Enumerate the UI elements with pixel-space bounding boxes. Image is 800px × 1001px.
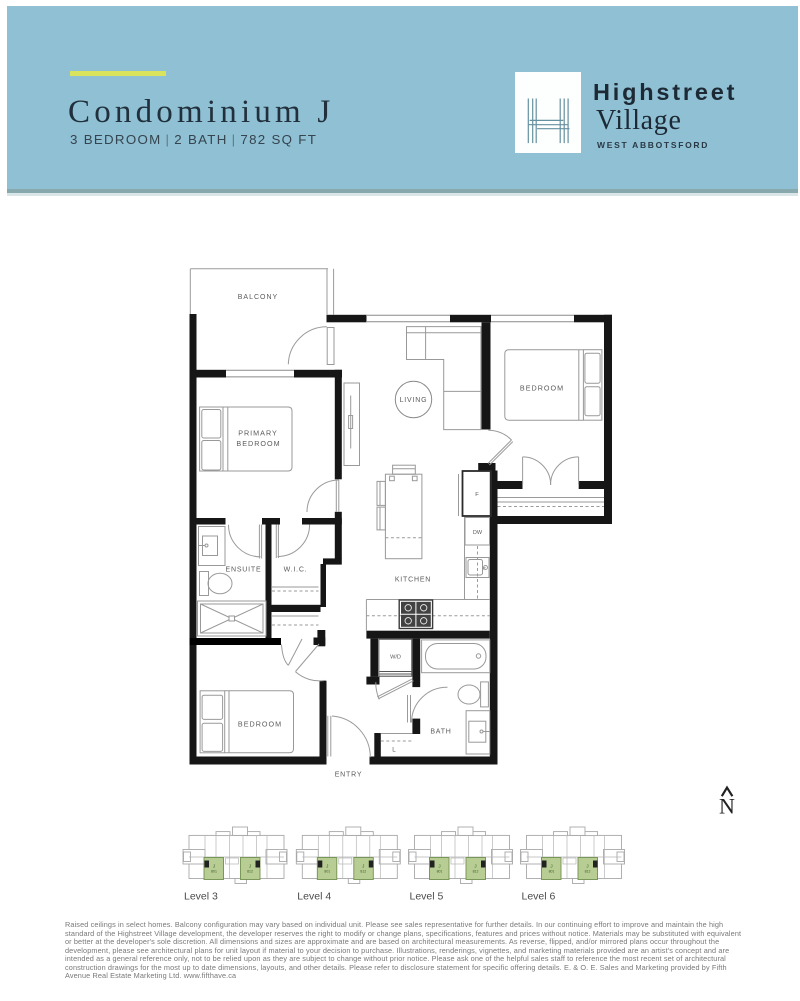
svg-text:Level 5: Level 5 — [410, 891, 444, 903]
svg-text:LIVING: LIVING — [400, 397, 428, 404]
svg-text:W/D: W/D — [390, 655, 401, 661]
svg-text:L: L — [392, 747, 396, 754]
svg-text:BATH: BATH — [430, 729, 451, 736]
svg-text:KITCHEN: KITCHEN — [395, 577, 431, 584]
svg-text:ENTRY: ENTRY — [335, 772, 363, 779]
svg-text:PRIMARY: PRIMARY — [238, 429, 278, 438]
svg-text:N: N — [719, 793, 735, 818]
svg-text:Level 6: Level 6 — [522, 891, 556, 903]
svg-text:BEDROOM: BEDROOM — [238, 720, 282, 729]
svg-text:Level 4: Level 4 — [297, 891, 331, 903]
svg-text:W.I.C.: W.I.C. — [284, 567, 308, 574]
svg-text:ENSUITE: ENSUITE — [226, 567, 262, 574]
svg-text:F: F — [475, 492, 479, 498]
svg-text:BEDROOM: BEDROOM — [236, 439, 280, 448]
svg-text:BALCONY: BALCONY — [238, 294, 278, 301]
svg-text:Level 3: Level 3 — [184, 891, 218, 903]
svg-text:DW: DW — [473, 530, 483, 536]
svg-text:BEDROOM: BEDROOM — [520, 384, 564, 393]
